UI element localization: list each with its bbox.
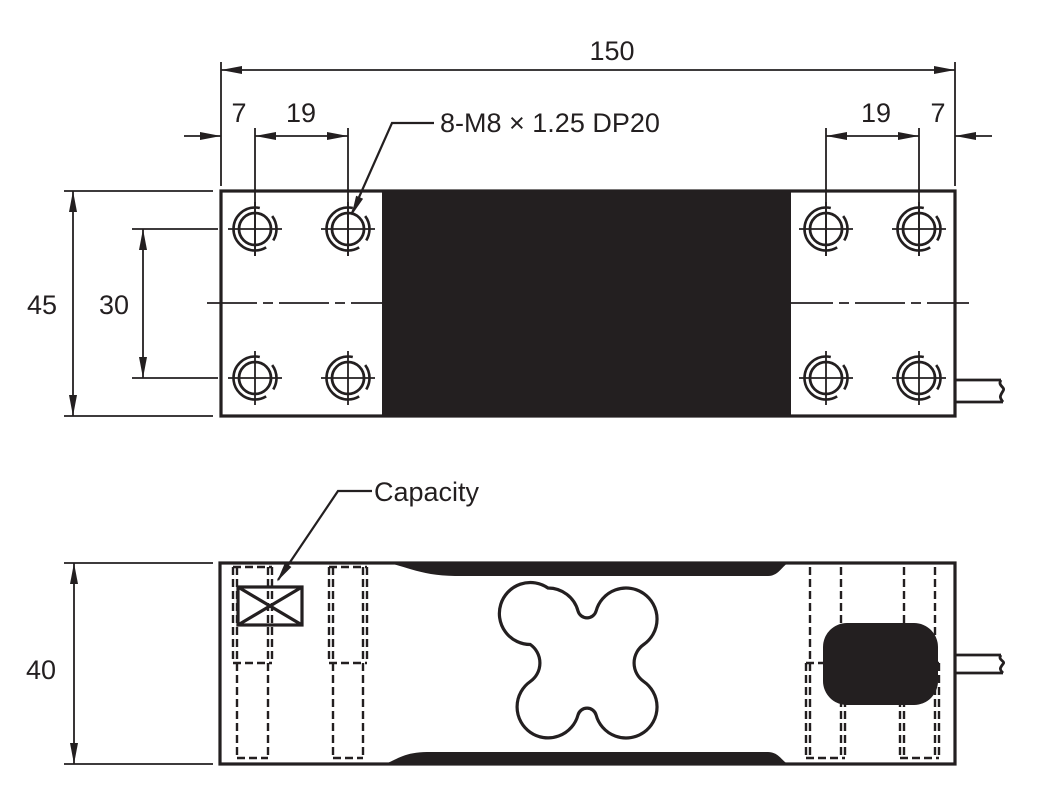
dim-45-label: 45	[27, 290, 57, 320]
cable-side-view	[955, 655, 1004, 673]
drawing-canvas: 150 7 19 19 7 45	[0, 0, 1046, 802]
dim-19-left-label: 19	[286, 98, 316, 128]
thread-callout-label: 8-M8 × 1.25 DP20	[440, 108, 660, 138]
dim-overall-height: 40	[26, 563, 213, 764]
cable-top-view	[955, 380, 1004, 402]
dim-right-hole-offsets: 19 7	[826, 98, 992, 140]
arrowhead	[955, 132, 976, 140]
dim-30-label: 30	[99, 290, 129, 320]
arrowhead	[327, 132, 348, 140]
top-view: 150 7 19 19 7 45	[27, 36, 1004, 416]
dim-left-hole-offsets: 7 19	[184, 98, 348, 140]
threaded-hole	[799, 202, 853, 256]
threaded-hole	[321, 351, 375, 405]
cable-potting-blob	[823, 623, 938, 705]
arrowhead	[898, 132, 919, 140]
dim-hole-row-pitch: 30	[99, 229, 218, 378]
dim-7-right-label: 7	[930, 98, 945, 128]
cable-break-symbol	[1000, 655, 1004, 673]
capacity-label: Capacity	[374, 477, 480, 507]
threaded-hole	[228, 351, 282, 405]
threaded-hole	[892, 351, 946, 405]
arrowhead	[139, 229, 147, 250]
arrowhead	[139, 357, 147, 378]
arrowhead	[826, 132, 847, 140]
arrowhead	[277, 563, 291, 582]
dim-150-label: 150	[589, 36, 634, 66]
cable-break-symbol	[1000, 380, 1004, 402]
center-black-block	[382, 191, 791, 416]
arrowhead	[200, 132, 221, 140]
arrowhead	[934, 66, 955, 74]
arrowhead	[70, 563, 78, 584]
threaded-hole	[228, 202, 282, 256]
flexure-cutout	[499, 583, 657, 738]
dim-19-right-label: 19	[861, 98, 891, 128]
load-cell-dimension-drawing: 150 7 19 19 7 45	[0, 0, 1046, 802]
arrowhead	[352, 196, 364, 216]
capacity-label-box	[238, 587, 302, 625]
arrowhead	[255, 132, 276, 140]
hidden-hole-left-2	[329, 567, 367, 758]
threaded-hole	[321, 202, 375, 256]
arrowhead	[69, 191, 77, 212]
dim-7-left-label: 7	[231, 98, 246, 128]
side-view: 40 Capacity	[26, 477, 1004, 765]
arrowhead	[69, 395, 77, 416]
arrowhead	[70, 743, 78, 764]
threaded-hole	[892, 202, 946, 256]
dim-40-label: 40	[26, 655, 56, 685]
arrowhead	[221, 66, 242, 74]
threaded-hole	[799, 351, 853, 405]
